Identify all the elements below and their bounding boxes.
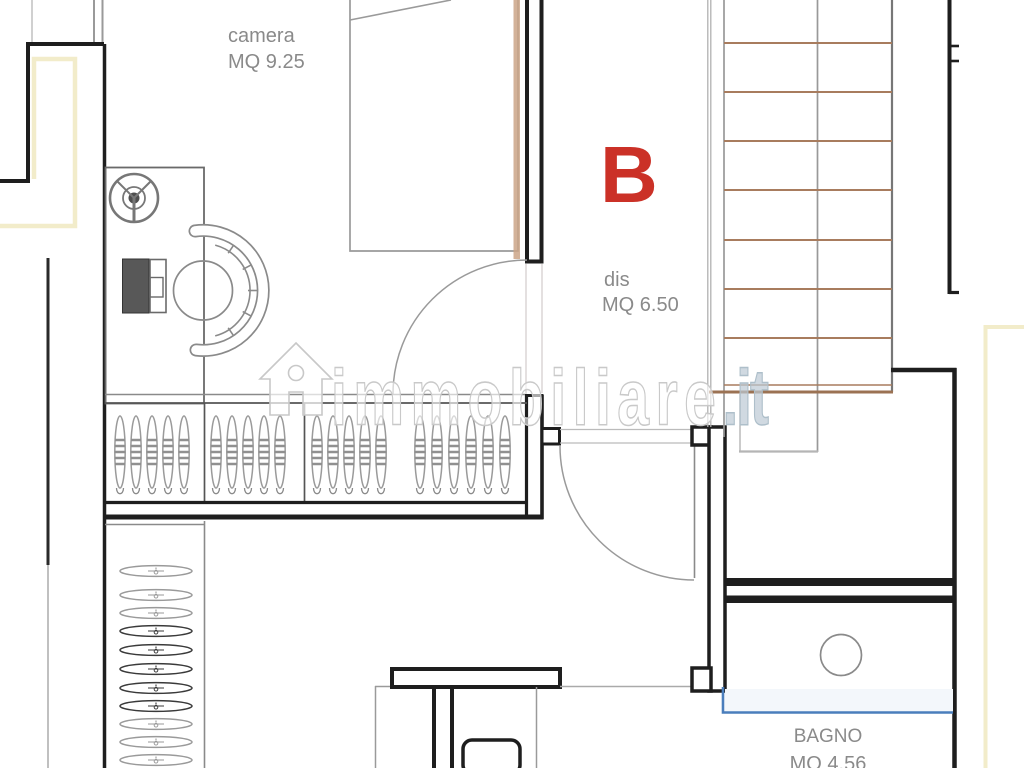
svg-text:camera: camera	[228, 25, 296, 47]
svg-text:MQ 6.50: MQ 6.50	[602, 294, 679, 316]
svg-text:MQ 9.25: MQ 9.25	[228, 51, 305, 73]
svg-text:B: B	[600, 130, 658, 219]
svg-text:dis: dis	[604, 269, 630, 291]
svg-text:immobiliare.it: immobiliare.it	[331, 354, 769, 442]
svg-text:BAGNO: BAGNO	[794, 726, 863, 747]
svg-text:MQ 4.56: MQ 4.56	[790, 753, 867, 768]
